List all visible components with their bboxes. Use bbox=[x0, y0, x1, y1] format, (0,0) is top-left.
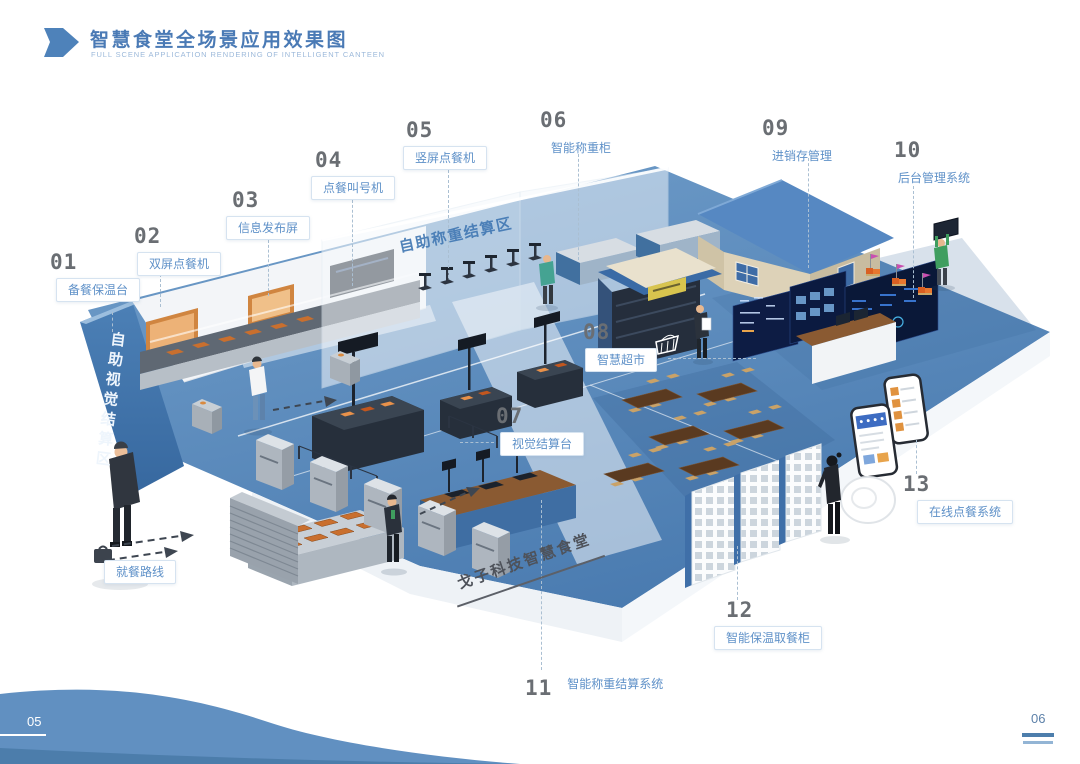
callout-12-label: 智能保温取餐柜 bbox=[714, 626, 822, 650]
callout-10: 10 后台管理系统 bbox=[894, 140, 971, 190]
callout-11: 11 智能称重结算系统 bbox=[525, 672, 664, 699]
callout-08-number: 08 bbox=[583, 322, 657, 343]
callout-03-label: 信息发布屏 bbox=[226, 216, 310, 240]
leader-line-03 bbox=[268, 240, 269, 296]
callout-13-number: 13 bbox=[903, 474, 1013, 495]
callout-09: 09 进销存管理 bbox=[762, 118, 833, 168]
page-number-right: 06 bbox=[1031, 711, 1045, 726]
leader-line-10 bbox=[913, 186, 914, 298]
leader-line-08 bbox=[668, 358, 756, 359]
callout-11-number: 11 bbox=[525, 678, 552, 699]
leader-line-06 bbox=[578, 154, 579, 260]
leader-line-01 bbox=[112, 312, 113, 332]
dining-route-label: 就餐路线 bbox=[104, 560, 176, 584]
plate bbox=[841, 477, 895, 523]
callout-01: 01 备餐保温台 bbox=[50, 252, 140, 302]
callout-07-label: 视觉结算台 bbox=[500, 432, 584, 456]
callout-05-number: 05 bbox=[406, 120, 487, 141]
leader-line-09 bbox=[808, 158, 809, 268]
phone-home-screen bbox=[850, 404, 897, 479]
callout-02: 02 双屏点餐机 bbox=[134, 226, 221, 276]
callout-05-label: 竖屏点餐机 bbox=[403, 146, 487, 170]
callout-07-number: 07 bbox=[496, 406, 584, 427]
leader-line-07 bbox=[460, 442, 494, 443]
page-number-left: 05 bbox=[27, 714, 41, 729]
leader-line-02 bbox=[160, 274, 161, 307]
callout-02-label: 双屏点餐机 bbox=[137, 252, 221, 276]
callout-13-label: 在线点餐系统 bbox=[917, 500, 1013, 524]
callout-12: 12 智能保温取餐柜 bbox=[714, 600, 822, 650]
callout-11-label: 智能称重结算系统 bbox=[566, 672, 664, 696]
callout-06: 06 智能称重柜 bbox=[540, 110, 612, 160]
leader-line-05 bbox=[448, 170, 449, 278]
leader-line-04 bbox=[352, 200, 353, 286]
callout-07: 07 视觉结算台 bbox=[496, 406, 584, 456]
dining-route-tag: 就餐路线 bbox=[104, 560, 176, 584]
callout-06-label: 智能称重柜 bbox=[550, 136, 612, 160]
page-subtitle: FULL SCENE APPLICATION RENDERING OF INTE… bbox=[91, 50, 385, 59]
callout-03-number: 03 bbox=[232, 190, 310, 211]
footer-wave bbox=[0, 690, 520, 764]
callout-01-label: 备餐保温台 bbox=[56, 278, 140, 302]
callout-10-label: 后台管理系统 bbox=[897, 166, 971, 190]
page-number-right-line-thick bbox=[1022, 733, 1054, 737]
callout-13: 13 在线点餐系统 bbox=[903, 474, 1013, 524]
page-title: 智慧食堂全场景应用效果图 bbox=[90, 25, 348, 52]
callout-04: 04 点餐叫号机 bbox=[311, 150, 395, 200]
callout-05: 05 竖屏点餐机 bbox=[403, 120, 487, 170]
callout-08: 08 智慧超市 bbox=[583, 322, 657, 372]
callout-04-label: 点餐叫号机 bbox=[311, 176, 395, 200]
callout-01-number: 01 bbox=[50, 252, 140, 273]
callout-09-label: 进销存管理 bbox=[771, 144, 833, 168]
leader-line-11 bbox=[541, 500, 542, 670]
callout-02-number: 02 bbox=[134, 226, 221, 247]
callout-06-number: 06 bbox=[540, 110, 612, 131]
callout-12-number: 12 bbox=[726, 600, 822, 621]
leader-line-12 bbox=[737, 546, 738, 600]
leader-line-13 bbox=[916, 440, 917, 474]
callout-03: 03 信息发布屏 bbox=[226, 190, 310, 240]
callout-10-number: 10 bbox=[894, 140, 971, 161]
title-arrow-icon bbox=[42, 26, 82, 60]
page-number-right-line-thin bbox=[1023, 741, 1053, 744]
callout-04-number: 04 bbox=[315, 150, 395, 171]
callout-08-label: 智慧超市 bbox=[585, 348, 657, 372]
infographic-page: 智慧食堂全场景应用效果图 FULL SCENE APPLICATION REND… bbox=[0, 0, 1080, 764]
callout-09-number: 09 bbox=[762, 118, 833, 139]
page-number-left-underline bbox=[0, 734, 46, 736]
